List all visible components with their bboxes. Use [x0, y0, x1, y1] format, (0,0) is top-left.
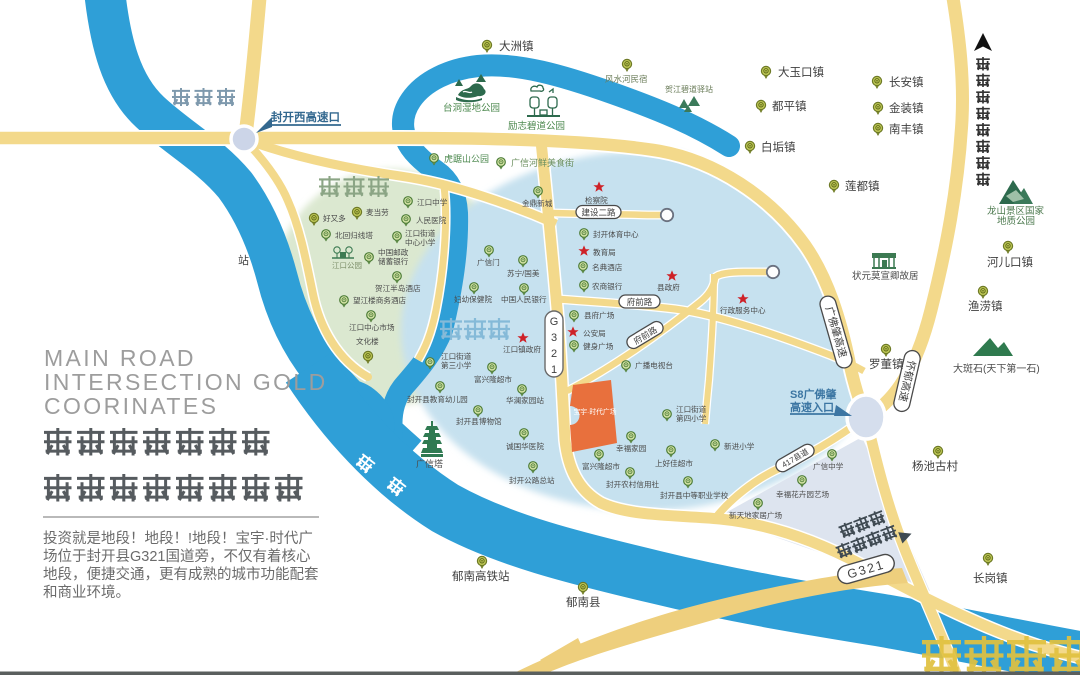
svg-text:中心小学: 中心小学: [405, 237, 436, 247]
svg-text:封开县教育幼儿园: 封开县教育幼儿园: [407, 394, 468, 404]
svg-text:教育局: 教育局: [593, 247, 616, 257]
svg-text:封开西高速口: 封开西高速口: [271, 110, 340, 124]
svg-text:场位于封开县G321国道旁，不仅有着核心: 场位于封开县G321国道旁，不仅有着核心: [43, 548, 310, 565]
svg-text:G: G: [550, 316, 559, 328]
svg-text:北回归线塔: 北回归线塔: [335, 230, 373, 240]
svg-text:妇幼保健院: 妇幼保健院: [454, 294, 492, 304]
svg-text:人民医院: 人民医院: [416, 215, 447, 225]
svg-text:苏宁/国美: 苏宁/国美: [507, 268, 540, 278]
svg-text:2: 2: [551, 348, 557, 360]
svg-text:健身广场: 健身广场: [583, 341, 614, 351]
svg-text:广信门: 广信门: [477, 257, 500, 267]
svg-text:行政服务中心: 行政服务中心: [720, 305, 766, 315]
svg-text:江口镇政府: 江口镇政府: [503, 344, 541, 354]
svg-text:华澜家园站: 华澜家园站: [506, 395, 544, 405]
svg-text:府前路: 府前路: [627, 297, 653, 307]
svg-text:封开公路总站: 封开公路总站: [509, 475, 555, 485]
svg-text:S8广佛肇: S8广佛肇: [790, 387, 837, 401]
svg-text:河儿口镇: 河儿口镇: [987, 255, 1033, 269]
svg-text:和商业环境。: 和商业环境。: [43, 583, 130, 601]
svg-text:都平镇: 都平镇: [772, 99, 807, 113]
svg-text:高速入口: 高速入口: [790, 400, 834, 414]
svg-text:检察院: 检察院: [585, 195, 608, 205]
svg-text:励志碧道公园: 励志碧道公园: [508, 120, 565, 132]
svg-text:渔涝镇: 渔涝镇: [968, 299, 1003, 313]
svg-text:白垢镇: 白垢镇: [761, 140, 796, 154]
svg-text:金装镇: 金装镇: [889, 101, 924, 115]
svg-text:储蓄银行: 储蓄银行: [378, 256, 409, 266]
svg-text:大玉口镇: 大玉口镇: [778, 65, 824, 79]
svg-text:广信中学: 广信中学: [813, 461, 844, 471]
svg-text:江口街道: 江口街道: [676, 404, 707, 414]
svg-text:长岗镇: 长岗镇: [973, 571, 1008, 585]
svg-text:江口街道: 江口街道: [441, 351, 472, 361]
svg-text:江口中学: 江口中学: [417, 197, 448, 207]
svg-text:第三小学: 第三小学: [441, 360, 472, 370]
svg-text:罗董镇: 罗董镇: [869, 357, 904, 371]
svg-text:杨池古村: 杨池古村: [912, 459, 958, 473]
svg-text:封开农村信用社: 封开农村信用社: [606, 479, 660, 489]
svg-text:3: 3: [551, 332, 557, 344]
svg-text:郁南县: 郁南县: [566, 595, 601, 609]
svg-text:莲都镇: 莲都镇: [845, 179, 880, 193]
svg-text:江口街道: 江口街道: [405, 228, 436, 238]
svg-text:投资就是地段！地段！!地段！宝宇·时代广: 投资就是地段！地段！!地段！宝宇·时代广: [43, 530, 313, 547]
svg-text:新天地家居广场: 新天地家居广场: [729, 510, 783, 520]
svg-text:长安镇: 长安镇: [889, 75, 924, 89]
svg-text:封开县博物馆: 封开县博物馆: [456, 416, 502, 426]
svg-text:诚国华医院: 诚国华医院: [506, 441, 544, 451]
svg-text:县政府: 县政府: [657, 282, 680, 292]
svg-text:风水河民宿: 风水河民宿: [605, 74, 648, 84]
svg-text:农商银行: 农商银行: [592, 281, 623, 291]
svg-text:贺江碧道驿站: 贺江碧道驿站: [665, 84, 713, 94]
svg-text:地段，便捷交通，更有成熟的城市功能配套: 地段，便捷交通，更有成熟的城市功能配套: [43, 565, 319, 583]
svg-text:公安局: 公安局: [583, 328, 606, 338]
svg-text:广播电视台: 广播电视台: [635, 360, 673, 370]
svg-text:状元莫宣卿故居: 状元莫宣卿故居: [852, 270, 919, 282]
svg-text:江口公园: 江口公园: [332, 261, 362, 270]
svg-text:幸福花卉园艺场: 幸福花卉园艺场: [776, 489, 830, 499]
svg-text:新进小学: 新进小学: [724, 441, 755, 451]
svg-text:COORINATES: COORINATES: [44, 393, 218, 419]
svg-text:江口中心市场: 江口中心市场: [349, 322, 395, 332]
svg-text:宝宇·时代广场: 宝宇·时代广场: [573, 407, 616, 416]
svg-text:台洞湿地公园: 台洞湿地公园: [443, 102, 500, 114]
svg-text:建设二路: 建设二路: [581, 208, 616, 218]
svg-text:封开县中等职业学校: 封开县中等职业学校: [660, 490, 729, 500]
svg-text:贺江半岛酒店: 贺江半岛酒店: [375, 283, 421, 293]
svg-text:1: 1: [551, 364, 557, 376]
svg-text:广信河鲜美食街: 广信河鲜美食街: [511, 157, 574, 168]
svg-text:金鼎新城: 金鼎新城: [522, 198, 553, 208]
svg-text:郁南高铁站: 郁南高铁站: [452, 569, 510, 583]
svg-text:封开体育中心: 封开体育中心: [593, 229, 639, 239]
svg-text:站: 站: [238, 253, 249, 267]
svg-text:文化楼: 文化楼: [356, 336, 379, 346]
svg-text:上好佳超市: 上好佳超市: [655, 458, 693, 468]
svg-text:望江楼商务酒店: 望江楼商务酒店: [353, 295, 407, 305]
svg-text:幸福家园: 幸福家园: [616, 443, 646, 453]
svg-text:中国人民银行: 中国人民银行: [501, 294, 547, 304]
svg-text:麦当劳: 麦当劳: [366, 207, 389, 217]
svg-text:富兴隆超市: 富兴隆超市: [582, 461, 620, 471]
svg-text:MAIN ROAD: MAIN ROAD: [44, 345, 196, 371]
svg-text:好又多: 好又多: [323, 213, 346, 223]
svg-text:南丰镇: 南丰镇: [889, 122, 924, 136]
svg-text:大斑石(天下第一石): 大斑石(天下第一石): [953, 362, 1040, 375]
svg-text:中国邮政: 中国邮政: [378, 247, 409, 257]
svg-text:名典酒店: 名典酒店: [592, 262, 623, 272]
svg-text:INTERSECTION GOLD: INTERSECTION GOLD: [44, 369, 328, 395]
svg-text:第四小学: 第四小学: [676, 413, 707, 423]
svg-text:地质公园: 地质公园: [997, 215, 1035, 227]
svg-text:富兴隆超市: 富兴隆超市: [474, 374, 512, 384]
svg-text:县府广场: 县府广场: [584, 310, 615, 320]
svg-text:虎踞山公园: 虎踞山公园: [444, 153, 489, 164]
svg-text:大洲镇: 大洲镇: [499, 39, 534, 53]
svg-text:广信塔: 广信塔: [416, 458, 443, 469]
